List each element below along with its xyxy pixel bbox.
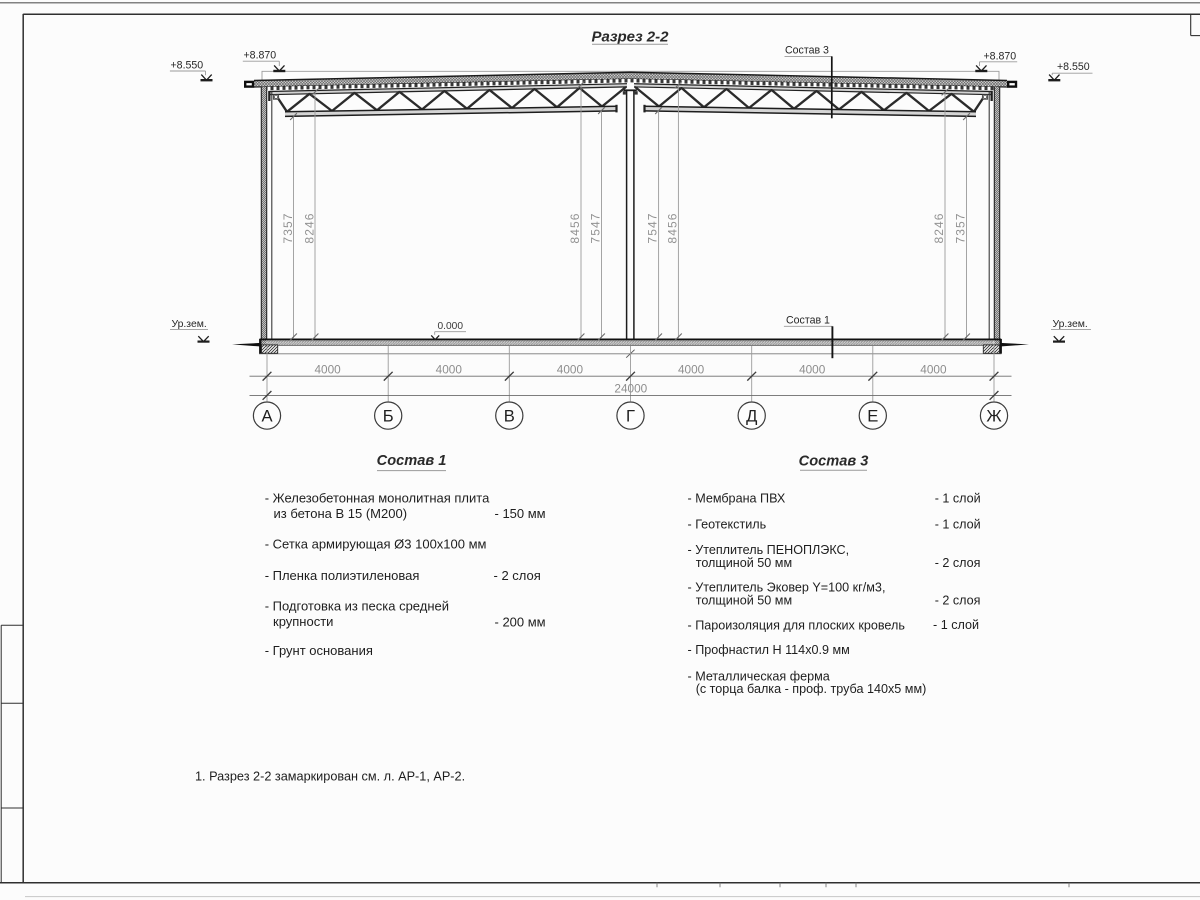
svg-text:7547: 7547: [646, 212, 660, 243]
svg-text:4000: 4000: [314, 362, 341, 376]
svg-text:8246: 8246: [932, 212, 946, 243]
svg-text:1. Разрез 2-2 замаркирован см.: 1. Разрез 2-2 замаркирован см. л. АР-1, …: [195, 770, 465, 784]
svg-text:7357: 7357: [281, 212, 295, 243]
svg-text:- Геотекстиль: - Геотекстиль: [688, 518, 767, 532]
svg-text:- Сетка армирующая Ø3 100х100: - Сетка армирующая Ø3 100х100 мм: [265, 537, 487, 552]
svg-text:крупности: крупности: [273, 614, 333, 629]
svg-text:- 200 мм: - 200 мм: [495, 615, 546, 630]
svg-text:- Подготовка из песка средней: - Подготовка из песка средней: [265, 599, 449, 614]
svg-text:4000: 4000: [920, 362, 947, 376]
svg-text:- 2 слоя: - 2 слоя: [935, 593, 981, 607]
svg-text:Г: Г: [626, 406, 635, 425]
svg-text:7547: 7547: [588, 212, 602, 243]
svg-text:4000: 4000: [436, 362, 463, 376]
svg-text:- Пароизоляция для плоских кро: - Пароизоляция для плоских кровель: [688, 619, 906, 633]
svg-text:- 1 слой: - 1 слой: [933, 618, 979, 632]
svg-text:Состав 3: Состав 3: [785, 44, 829, 56]
svg-text:- 2 слоя: - 2 слоя: [935, 556, 981, 570]
svg-text:- Пленка полиэтиленовая: - Пленка полиэтиленовая: [265, 568, 420, 583]
svg-text:0.000: 0.000: [438, 321, 464, 332]
svg-text:8456: 8456: [665, 212, 679, 243]
svg-text:4000: 4000: [678, 362, 705, 376]
svg-text:из бетона В 15 (М200): из бетона В 15 (М200): [274, 506, 408, 521]
svg-text:8456: 8456: [568, 212, 582, 243]
svg-text:Е: Е: [867, 406, 878, 425]
svg-text:Д: Д: [746, 406, 757, 425]
svg-text:- Железобетонная монолитная п: - Железобетонная монолитная плита: [265, 491, 490, 506]
svg-text:- 1 слой: - 1 слой: [935, 518, 981, 532]
svg-text:+8.550: +8.550: [1057, 61, 1090, 73]
svg-text:- 150 мм: - 150 мм: [495, 506, 546, 521]
svg-text:Состав 3: Состав 3: [799, 454, 869, 470]
svg-text:Состав 1: Состав 1: [377, 453, 447, 469]
svg-text:7357: 7357: [953, 212, 967, 243]
svg-text:- 2 слоя: - 2 слоя: [494, 568, 541, 583]
svg-text:А: А: [261, 406, 273, 425]
svg-text:В: В: [504, 406, 515, 425]
svg-text:Б: Б: [383, 406, 394, 425]
svg-text:Состав 1: Состав 1: [786, 314, 830, 326]
svg-text:+8.550: +8.550: [171, 60, 204, 72]
svg-text:+8.870: +8.870: [984, 50, 1017, 62]
svg-text:4000: 4000: [557, 362, 584, 376]
svg-text:Ж: Ж: [986, 406, 1002, 425]
svg-text:(с торца балка - проф. труба 1: (с торца балка - проф. труба 140х5 мм): [696, 682, 927, 696]
svg-text:24000: 24000: [614, 381, 647, 395]
svg-text:- Мембрана ПВХ: - Мембрана ПВХ: [688, 491, 786, 505]
svg-text:толщиной 50 мм: толщиной 50 мм: [696, 556, 792, 570]
svg-text:- Грунт основания: - Грунт основания: [265, 643, 373, 658]
svg-text:- 1 слой: - 1 слой: [935, 491, 981, 505]
svg-text:толщиной 50 мм: толщиной 50 мм: [696, 593, 792, 607]
svg-text:Ур.зем.: Ур.зем.: [1053, 319, 1088, 330]
svg-text:+8.870: +8.870: [244, 50, 277, 62]
svg-text:Ур.зем.: Ур.зем.: [172, 319, 207, 330]
svg-text:- Профнастил Н 114х0.9 мм: - Профнастил Н 114х0.9 мм: [688, 643, 850, 657]
svg-text:4000: 4000: [799, 362, 826, 376]
svg-text:Разрез 2-2: Разрез 2-2: [591, 29, 669, 46]
svg-text:8246: 8246: [302, 212, 316, 243]
